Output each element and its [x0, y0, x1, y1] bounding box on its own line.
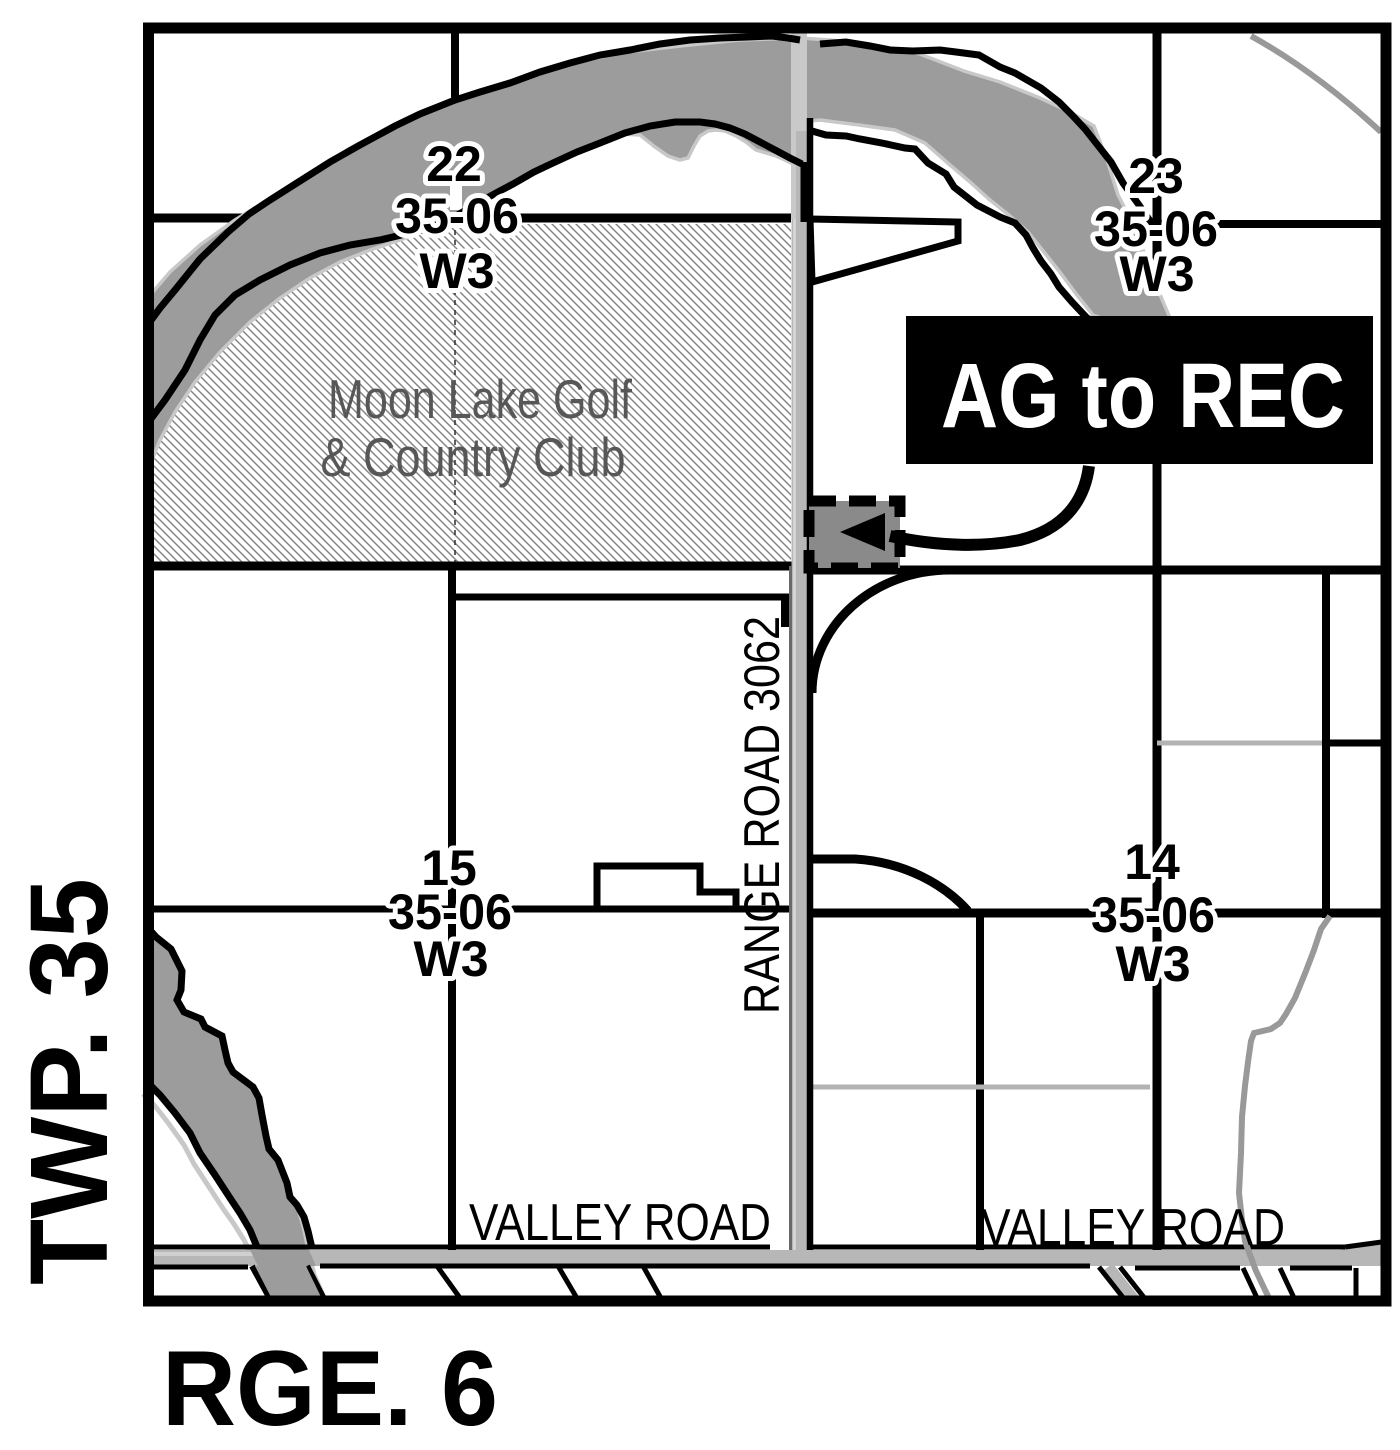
svg-text:W3: W3 — [1120, 246, 1195, 302]
svg-text:VALLEY ROAD: VALLEY ROAD — [981, 1199, 1285, 1257]
svg-text:AG to REC: AG to REC — [941, 345, 1345, 447]
svg-text:VALLEY ROAD: VALLEY ROAD — [469, 1194, 771, 1252]
svg-text:22: 22 — [426, 136, 482, 192]
svg-text:14: 14 — [1124, 834, 1180, 890]
svg-text:35-06: 35-06 — [1091, 887, 1215, 943]
svg-text:23: 23 — [1128, 148, 1184, 204]
svg-text:TWP. 35: TWP. 35 — [8, 878, 131, 1285]
svg-text:RGE. 6: RGE. 6 — [162, 1328, 498, 1448]
svg-text:35-06: 35-06 — [395, 188, 519, 244]
svg-text:W3: W3 — [1116, 936, 1191, 992]
svg-text:RANGE ROAD 3062: RANGE ROAD 3062 — [734, 616, 790, 1014]
svg-text:& Country Club: & Country Club — [321, 426, 626, 488]
svg-text:Moon Lake Golf: Moon Lake Golf — [328, 368, 633, 430]
svg-text:W3: W3 — [420, 243, 495, 299]
svg-text:W3: W3 — [414, 931, 489, 987]
